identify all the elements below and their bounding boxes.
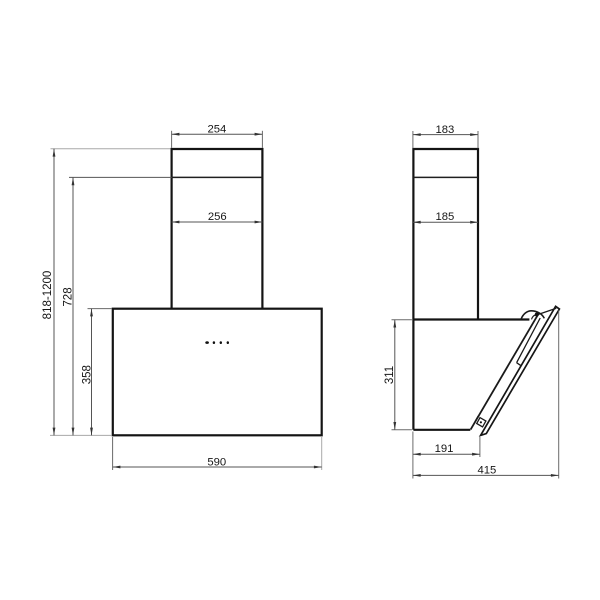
svg-text:256: 256 xyxy=(208,211,227,223)
svg-text:358: 358 xyxy=(81,365,93,384)
svg-text:311: 311 xyxy=(384,366,396,384)
svg-text:183: 183 xyxy=(435,124,454,136)
svg-text:728: 728 xyxy=(62,287,74,306)
svg-text:185: 185 xyxy=(435,211,454,223)
svg-text:254: 254 xyxy=(207,124,226,136)
svg-text:818-1200: 818-1200 xyxy=(42,271,54,320)
svg-text:191: 191 xyxy=(435,443,454,455)
svg-text:590: 590 xyxy=(207,456,226,468)
svg-text:415: 415 xyxy=(477,465,496,477)
